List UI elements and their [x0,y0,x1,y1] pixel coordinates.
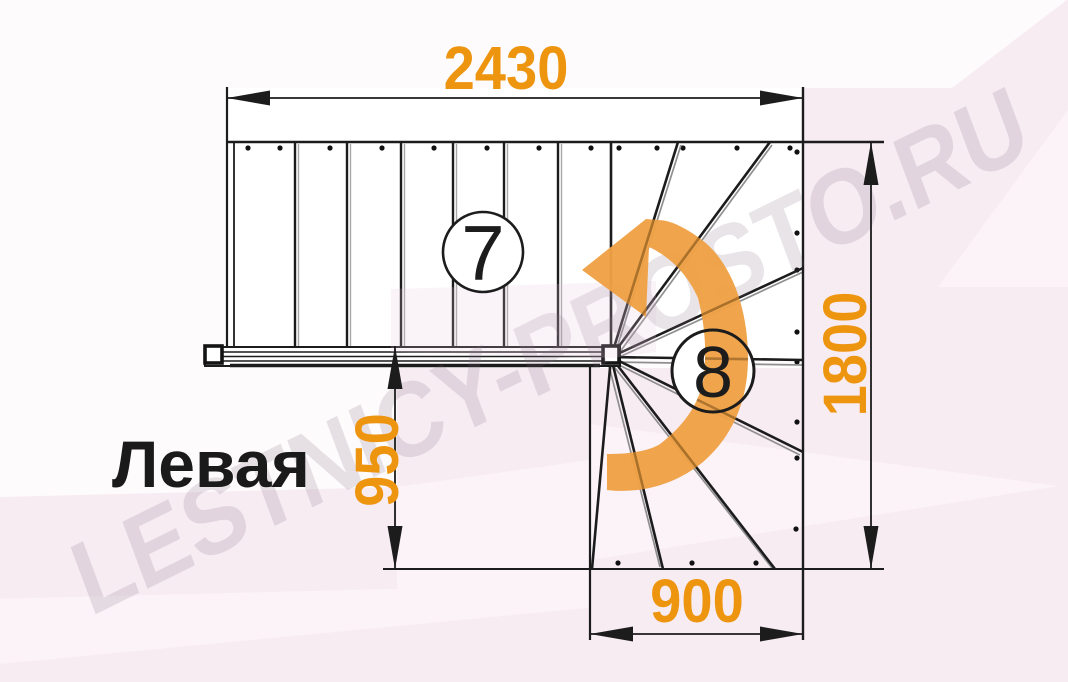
svg-text:900: 900 [650,568,744,636]
svg-text:8: 8 [693,333,733,413]
svg-text:7: 7 [461,209,504,297]
svg-text:1800: 1800 [812,292,880,417]
svg-text:950: 950 [344,413,412,507]
svg-text:Левая: Левая [112,427,310,501]
svg-text:2430: 2430 [444,35,569,103]
